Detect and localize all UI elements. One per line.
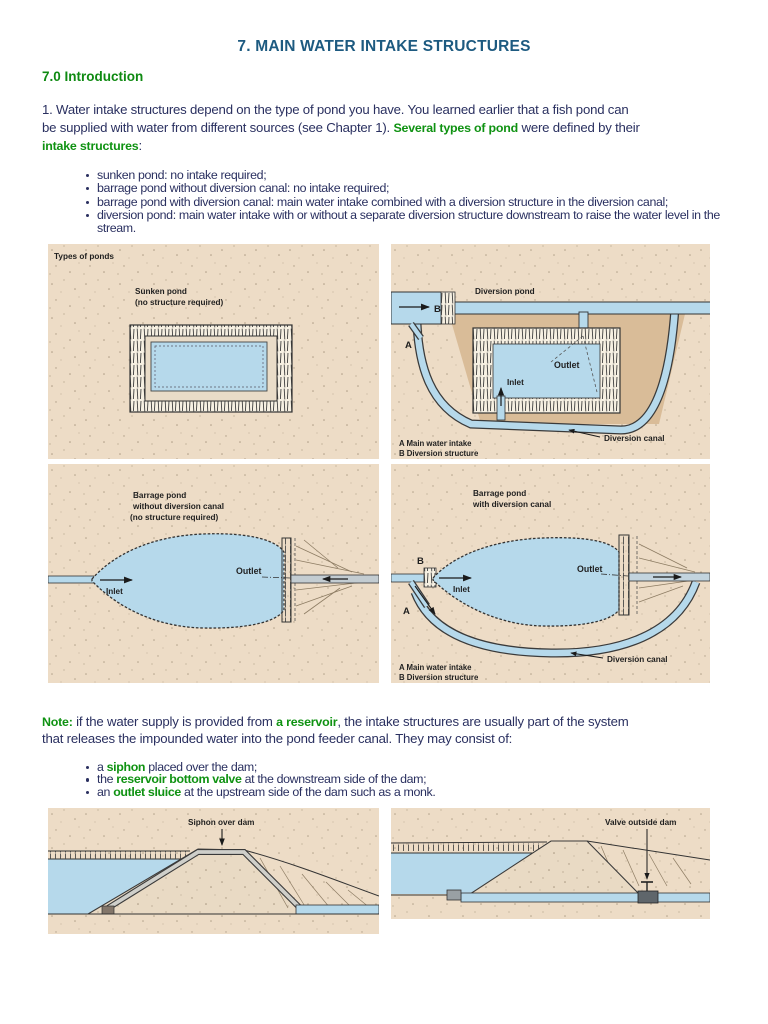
text-segment: an [97,785,113,799]
paragraph-line: be supplied with water from different so… [42,119,640,137]
figure-barrage-pond-no-canal: Barrage pond without diversion canal (no… [48,464,379,683]
text-segment: were defined by their [518,120,640,135]
pond-water [493,344,600,398]
marker-a: A [405,340,412,351]
highlighted-term: Several types of pond [393,121,518,135]
highlighted-term: intake structures [42,139,138,153]
outlet-label: Outlet [554,360,579,370]
marker-b: B [434,304,441,315]
inlet-label: Inlet [453,585,470,594]
pond-types-list: sunken pond: no intake required; barrage… [84,169,748,235]
stream [391,574,427,582]
text-segment: , the intake structures are usually part… [337,714,628,729]
canal-label: Diversion canal [607,655,668,664]
diversion-structure [441,292,455,324]
highlighted-term: outlet sluice [113,785,181,799]
dam [619,535,629,615]
text-segment: be supplied with water from different so… [42,120,393,135]
figure-caption: Valve outside dam [605,818,676,827]
paragraph-line: intake structures: [42,137,640,155]
figure-diversion-pond: Diversion pond Outlet Inlet B A Diversio… [391,244,710,459]
list-item: barrage pond with diversion canal: main … [84,196,748,209]
list-item: barrage pond without diversion canal: no… [84,182,748,195]
document-page: 7. MAIN WATER INTAKE STRUCTURES 7.0 Intr… [0,0,768,1024]
bottom-pipe [461,893,710,902]
legend-b: B Diversion structure [399,449,479,458]
marker-a: A [403,606,410,617]
inlet-label: Inlet [507,378,524,387]
stream [48,576,94,583]
dam [282,538,291,622]
barrage-pond-canal-diagram: Barrage pond with diversion canal Inlet … [391,464,710,683]
valve [638,891,658,903]
figure-caption: Types of ponds [54,252,114,261]
pond-sublabel: (no structure required) [130,513,219,522]
page-title: 7. MAIN WATER INTAKE STRUCTURES [0,38,768,56]
note-paragraph: Note: if the water supply is provided fr… [42,714,629,747]
note-label: Note: [42,715,73,729]
paragraph-line: that releases the impounded water into t… [42,731,629,748]
pond-label2: without diversion canal [132,502,224,511]
sunken-pond-diagram: Types of ponds Sunken pond (no structure… [48,244,379,459]
figure-sunken-pond: Types of ponds Sunken pond (no structure… [48,244,379,459]
pond-label: Diversion pond [475,287,535,296]
intro-paragraph: 1. Water intake structures depend on the… [42,101,640,155]
figure-valve-outside-dam: Valve outside dam [391,808,710,919]
figure-caption: Siphon over dam [188,818,254,827]
legend-a: A Main water intake [399,439,472,448]
pond-sublabel: (no structure required) [135,298,224,307]
bank-hatch [48,851,186,859]
pipe-inlet [102,906,114,914]
figure-barrage-pond-with-canal: Barrage pond with diversion canal Inlet … [391,464,710,683]
pond-label: Sunken pond [135,287,187,296]
intake-structures-list: a siphon placed over the dam; the reserv… [84,761,748,798]
list-item: sunken pond: no intake required; [84,169,748,182]
valve-diagram: Valve outside dam [391,808,710,919]
text-segment: if the water supply is provided from [73,714,277,729]
text-segment: : [138,138,141,153]
siphon-diagram: Siphon over dam [48,808,379,934]
pond-label: Barrage pond [473,489,526,498]
diversion-pond-diagram: Diversion pond Outlet Inlet B A Diversio… [391,244,710,459]
marker-b: B [417,556,424,567]
bank-hatch [391,843,539,851]
list-item: an outlet sluice at the upstream side of… [84,786,748,798]
barrage-pond-diagram: Barrage pond without diversion canal (no… [48,464,379,683]
inlet-label: Inlet [106,587,123,596]
outlet-canal [296,905,379,914]
pond-label2: with diversion canal [472,500,551,509]
canal-label: Diversion canal [604,434,665,443]
paragraph-line: Note: if the water supply is provided fr… [42,714,629,731]
paragraph-line: 1. Water intake structures depend on the… [42,101,640,119]
section-heading: 7.0 Introduction [42,69,143,84]
figure-siphon-over-dam: Siphon over dam [48,808,379,934]
legend-a: A Main water intake [399,663,472,672]
pipe-intake [447,890,461,900]
outlet-label: Outlet [236,566,261,576]
pond-label: Barrage pond [133,491,186,500]
pond-water [151,342,267,391]
legend-b: B Diversion structure [399,673,479,682]
highlighted-term: a reservoir [276,715,337,729]
list-item: diversion pond: main water intake with o… [84,209,748,236]
outlet-label: Outlet [577,564,602,574]
text-segment: at the upstream side of the dam such as … [181,785,436,799]
